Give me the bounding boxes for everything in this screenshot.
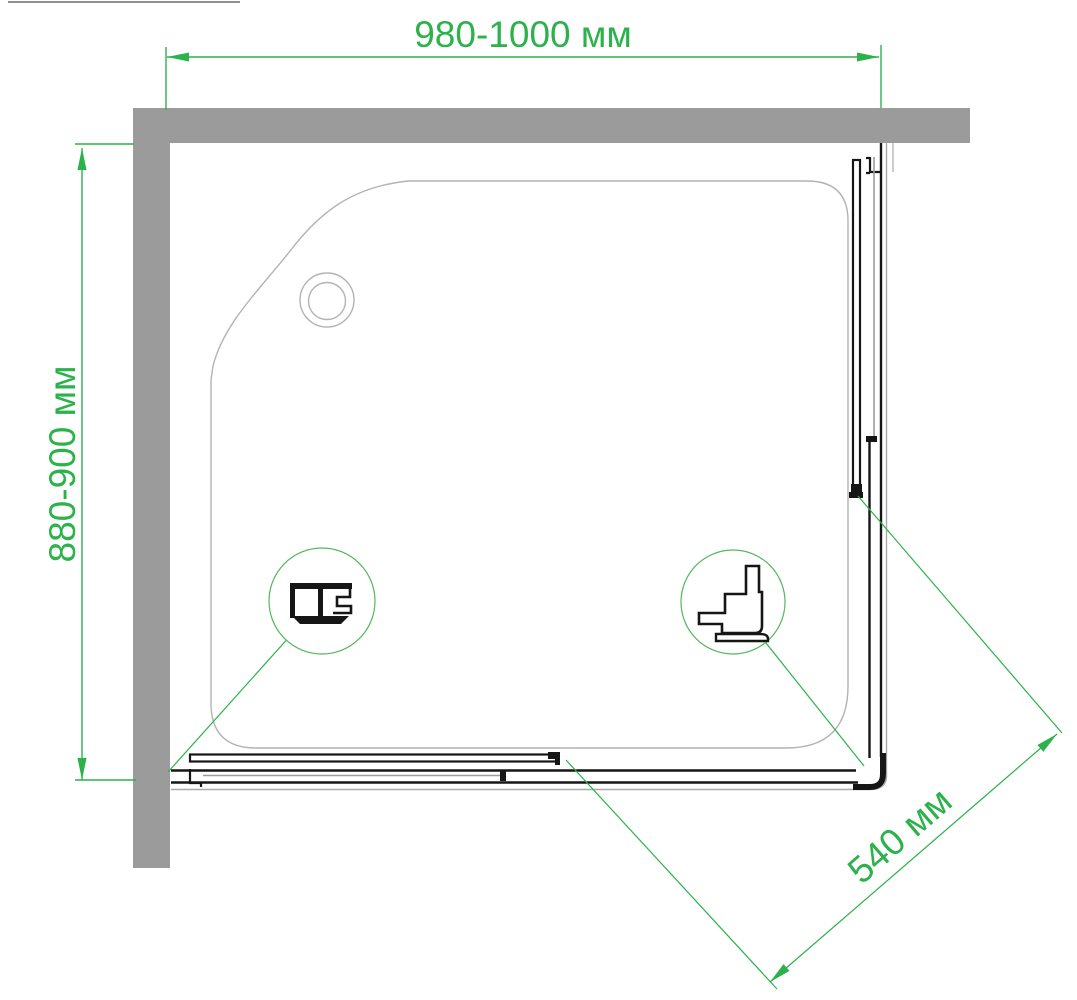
bottom-sliding-door-glass bbox=[190, 755, 556, 762]
width-dimension-label: 980-1000 мм bbox=[414, 14, 632, 55]
bottom-door-assembly bbox=[171, 752, 883, 787]
width-arrow-right bbox=[857, 53, 879, 62]
right-door-roller-foot bbox=[849, 492, 863, 498]
profile-mid-rib bbox=[318, 583, 323, 618]
tray-outline bbox=[211, 181, 848, 748]
right-glass-end-cap bbox=[866, 436, 877, 442]
width-arrow-left bbox=[167, 53, 189, 62]
wall-top bbox=[133, 108, 970, 143]
detail-bubble-left bbox=[269, 548, 375, 654]
depth-arrow-bottom bbox=[78, 758, 87, 780]
profile-left-rib bbox=[290, 583, 295, 618]
profile-bottom-shoe bbox=[292, 616, 349, 624]
depth-arrow-top bbox=[78, 148, 87, 170]
entry-ext-line-lower bbox=[566, 760, 777, 989]
dimension-width: 980-1000 мм bbox=[166, 14, 881, 110]
entry-ext-line-upper bbox=[858, 496, 1062, 733]
depth-dimension-label: 880-900 мм bbox=[42, 366, 83, 563]
shower-tray bbox=[211, 181, 848, 748]
shower-enclosure-plan-drawing: 980-1000 мм 880-900 мм 540 мм bbox=[0, 0, 1077, 1000]
right-sliding-door-glass bbox=[853, 160, 860, 486]
wall-left bbox=[133, 108, 170, 868]
entry-dimension-label: 540 мм bbox=[840, 780, 960, 892]
corner-profile-base-bar bbox=[716, 634, 768, 641]
dimension-depth: 880-900 мм bbox=[42, 144, 136, 780]
detail-bubble-right bbox=[681, 550, 785, 654]
right-door-assembly bbox=[849, 143, 881, 758]
entry-arrow-lower bbox=[770, 964, 790, 982]
bottom-door-end-cap bbox=[548, 752, 560, 765]
bottom-glass-end-cap bbox=[500, 771, 506, 781]
